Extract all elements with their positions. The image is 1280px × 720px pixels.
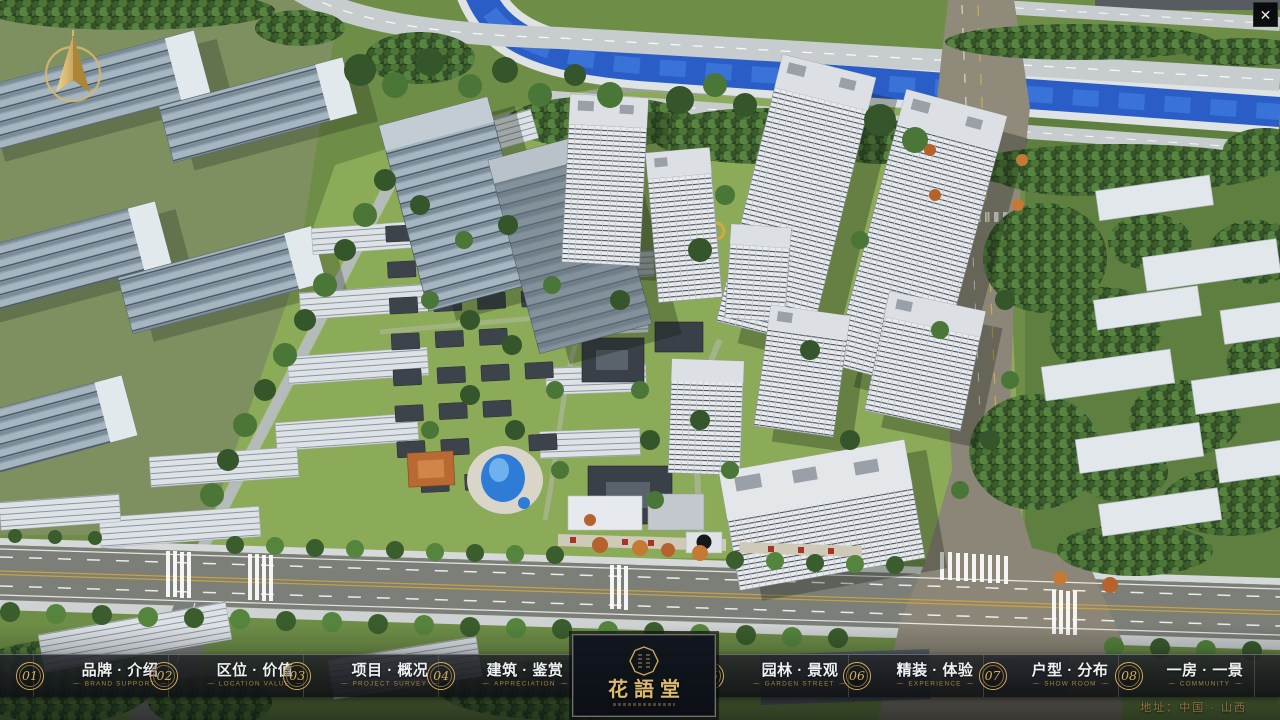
nav-item-project-survey[interactable]: 03 项目 · 概况 PROJECT SURVEY <box>303 655 439 697</box>
presentation-window: 01 品牌 · 介绍 BRAND SUPPORT 02 区位 · 价值 LOCA… <box>0 0 1280 720</box>
nav-label-en: SHOW ROOM <box>1031 680 1109 687</box>
nav-number-badge: 02 <box>150 662 178 690</box>
nav-number-badge: 07 <box>979 662 1007 690</box>
close-icon: ✕ <box>1260 8 1272 22</box>
project-logo-title: 花語堂 <box>602 679 686 699</box>
nav-label-zh: 品牌 · 介绍 <box>82 662 159 679</box>
nav-label-zh: 建筑 · 鉴赏 <box>487 662 564 679</box>
nav-label-zh: 户型 · 分布 <box>1032 662 1109 679</box>
nav-item-interior-experience[interactable]: 06 精装 · 体验 EXPERIENCE <box>848 655 984 697</box>
nav-number-badge: 03 <box>283 662 311 690</box>
close-button[interactable]: ✕ <box>1253 2 1278 27</box>
logo-seal-icon <box>629 646 659 676</box>
nav-label-zh: 园林 · 景观 <box>762 662 839 679</box>
nav-label-en: APPRECIATION <box>481 680 569 687</box>
swimming-pool <box>467 446 543 514</box>
nav-label-en: COMMUNITY <box>1167 680 1243 687</box>
nav-item-brand-intro[interactable]: 01 品牌 · 介绍 BRAND SUPPORT <box>33 655 169 697</box>
nav-number-badge: 01 <box>16 662 44 690</box>
nav-number-badge: 06 <box>843 662 871 690</box>
project-logo-tagline <box>613 703 675 706</box>
nav-number-badge: 04 <box>427 662 455 690</box>
nav-label-en: PROJECT SURVEY <box>340 680 441 687</box>
nav-number-badge: 08 <box>1115 662 1143 690</box>
nav-label-zh: 一房 · 一景 <box>1167 662 1244 679</box>
nav-item-room-view[interactable]: 08 一房 · 一景 COMMUNITY <box>1118 655 1255 697</box>
project-logo-panel[interactable]: 花語堂 <box>572 634 716 717</box>
nav-label-en: EXPERIENCE <box>895 680 974 687</box>
nav-label-en: GARDEN STREET <box>752 680 848 687</box>
aerial-masterplan-render <box>0 0 1280 720</box>
nav-item-garden-landscape[interactable]: 05 园林 · 景观 GARDEN STREET <box>713 655 849 697</box>
nav-label-zh: 区位 · 价值 <box>217 662 294 679</box>
nav-item-unit-layout[interactable]: 07 户型 · 分布 SHOW ROOM <box>983 655 1119 697</box>
project-address: 地址：中国 · 山西 <box>1140 699 1247 715</box>
nav-label-zh: 项目 · 概况 <box>352 662 429 679</box>
nav-label-zh: 精装 · 体验 <box>897 662 974 679</box>
nav-item-architecture[interactable]: 04 建筑 · 鉴赏 APPRECIATION <box>438 655 574 697</box>
